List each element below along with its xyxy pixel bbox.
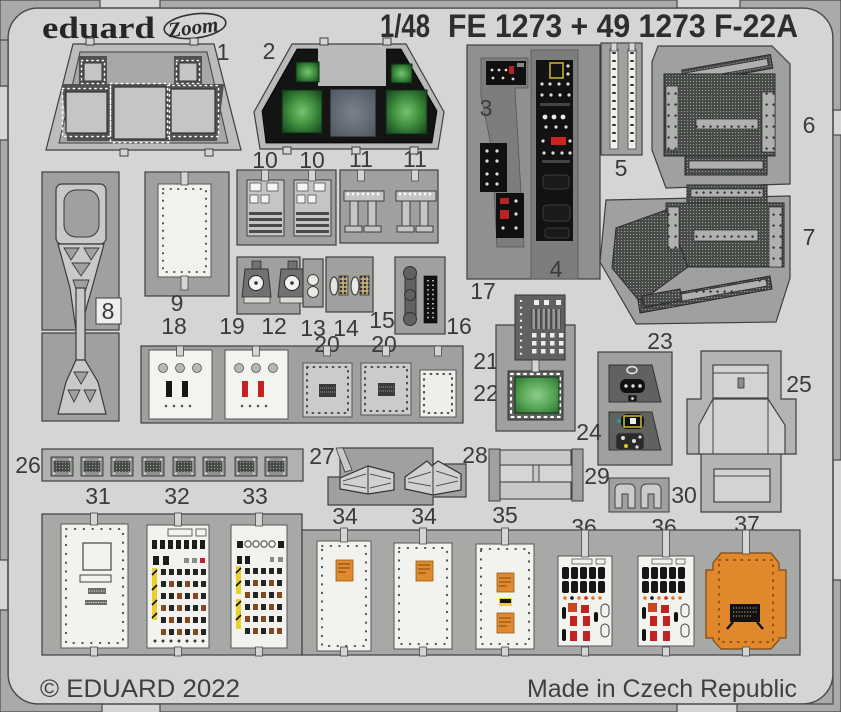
svg-text:18: 18 — [161, 313, 187, 339]
svg-text:28: 28 — [462, 442, 488, 468]
svg-text:33: 33 — [242, 483, 268, 509]
svg-text:eduard: eduard — [42, 10, 155, 45]
svg-text:15: 15 — [369, 307, 395, 333]
svg-text:6: 6 — [803, 112, 816, 138]
svg-text:34: 34 — [332, 503, 358, 529]
svg-text:1: 1 — [217, 39, 230, 65]
svg-text:12: 12 — [261, 313, 287, 339]
svg-text:21: 21 — [473, 348, 499, 374]
svg-text:17: 17 — [470, 278, 496, 304]
svg-text:30: 30 — [671, 482, 697, 508]
svg-text:3: 3 — [480, 95, 493, 121]
svg-text:35: 35 — [492, 502, 518, 528]
svg-text:19: 19 — [219, 313, 245, 339]
svg-text:10: 10 — [299, 147, 325, 173]
svg-text:26: 26 — [15, 452, 41, 478]
svg-text:16: 16 — [446, 313, 472, 339]
svg-text:5: 5 — [615, 155, 628, 181]
svg-text:10: 10 — [252, 147, 278, 173]
svg-text:2: 2 — [263, 38, 276, 64]
svg-text:23: 23 — [647, 328, 673, 354]
svg-text:27: 27 — [309, 443, 335, 469]
svg-text:34: 34 — [411, 503, 437, 529]
svg-text:7: 7 — [803, 224, 816, 250]
svg-text:25: 25 — [786, 371, 812, 397]
svg-text:24: 24 — [576, 419, 602, 445]
svg-text:8: 8 — [102, 298, 115, 324]
svg-text:© EDUARD 2022: © EDUARD 2022 — [40, 675, 240, 703]
svg-text:4: 4 — [550, 256, 563, 282]
svg-text:32: 32 — [164, 483, 190, 509]
svg-text:29: 29 — [584, 463, 610, 489]
svg-text:22: 22 — [473, 380, 499, 406]
svg-text:31: 31 — [85, 483, 111, 509]
svg-text:Made in Czech Republic: Made in Czech Republic — [527, 675, 797, 703]
svg-text:FE 1273 + 49 1273 F-22A: FE 1273 + 49 1273 F-22A — [448, 8, 798, 44]
